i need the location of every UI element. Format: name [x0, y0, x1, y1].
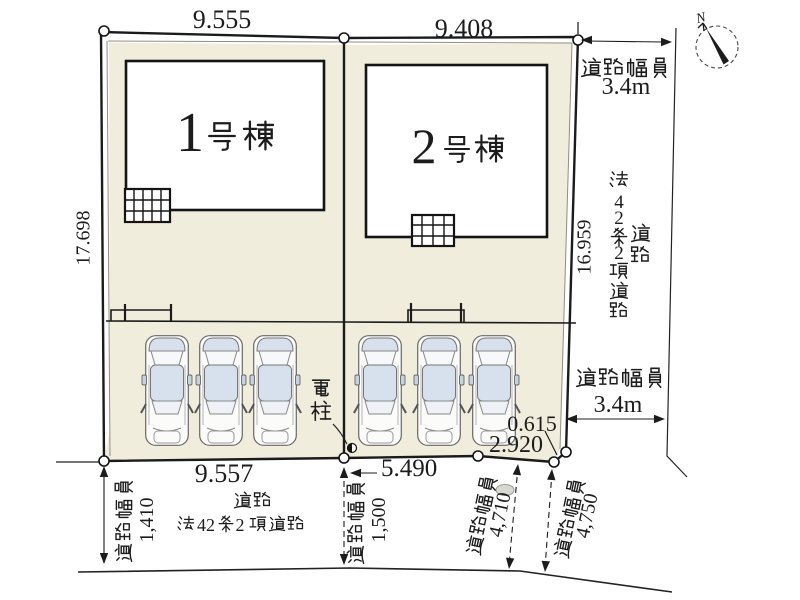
- svg-text:9.408: 9.408: [435, 14, 494, 43]
- svg-text:2: 2: [614, 243, 624, 264]
- svg-text:2: 2: [412, 118, 437, 174]
- svg-text:16.959: 16.959: [574, 220, 596, 275]
- svg-text:2: 2: [614, 208, 624, 229]
- svg-text:17.698: 17.698: [73, 211, 95, 266]
- svg-text:1,410: 1,410: [136, 498, 158, 543]
- svg-text:2: 2: [236, 515, 245, 535]
- svg-text:1: 1: [176, 102, 204, 164]
- svg-text:1,500: 1,500: [368, 498, 390, 543]
- svg-text:9.557: 9.557: [195, 459, 254, 488]
- svg-text:9.555: 9.555: [193, 5, 252, 34]
- svg-text:2.920: 2.920: [489, 432, 543, 458]
- svg-text:3.4m: 3.4m: [602, 74, 651, 100]
- svg-text:42: 42: [197, 515, 215, 535]
- svg-text:5.490: 5.490: [381, 455, 437, 482]
- svg-text:3.4m: 3.4m: [594, 392, 643, 418]
